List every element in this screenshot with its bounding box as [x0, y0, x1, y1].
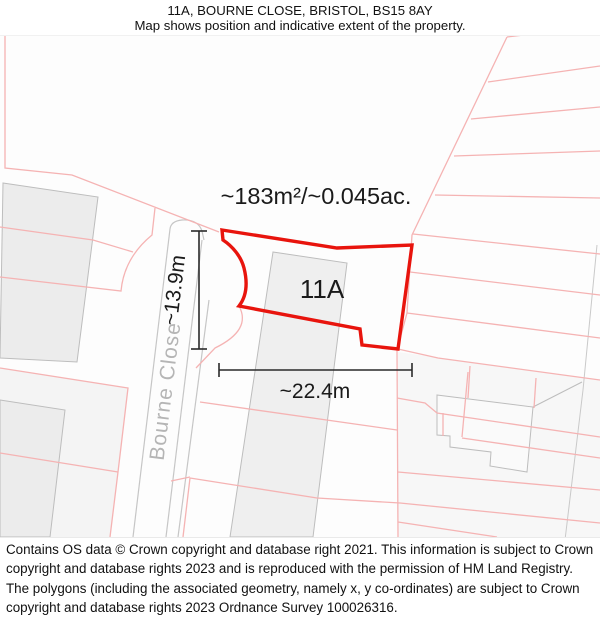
plot-label: 11A	[300, 274, 345, 304]
area-label: ~183m²/~0.045ac.	[221, 183, 412, 209]
map-header: 11A, BOURNE CLOSE, BRISTOL, BS15 8AY Map…	[0, 0, 600, 36]
page-subtitle: Map shows position and indicative extent…	[0, 18, 600, 33]
property-map: ~183m²/~0.045ac. 11A ~13.9m ~22.4m Bourn…	[0, 0, 600, 625]
page-title: 11A, BOURNE CLOSE, BRISTOL, BS15 8AY	[0, 4, 600, 18]
map-canvas: ~183m²/~0.045ac. 11A ~13.9m ~22.4m Bourn…	[0, 0, 600, 625]
copyright-notice: Contains OS data © Crown copyright and d…	[0, 537, 600, 628]
width-measurement-label: ~22.4m	[280, 380, 351, 403]
